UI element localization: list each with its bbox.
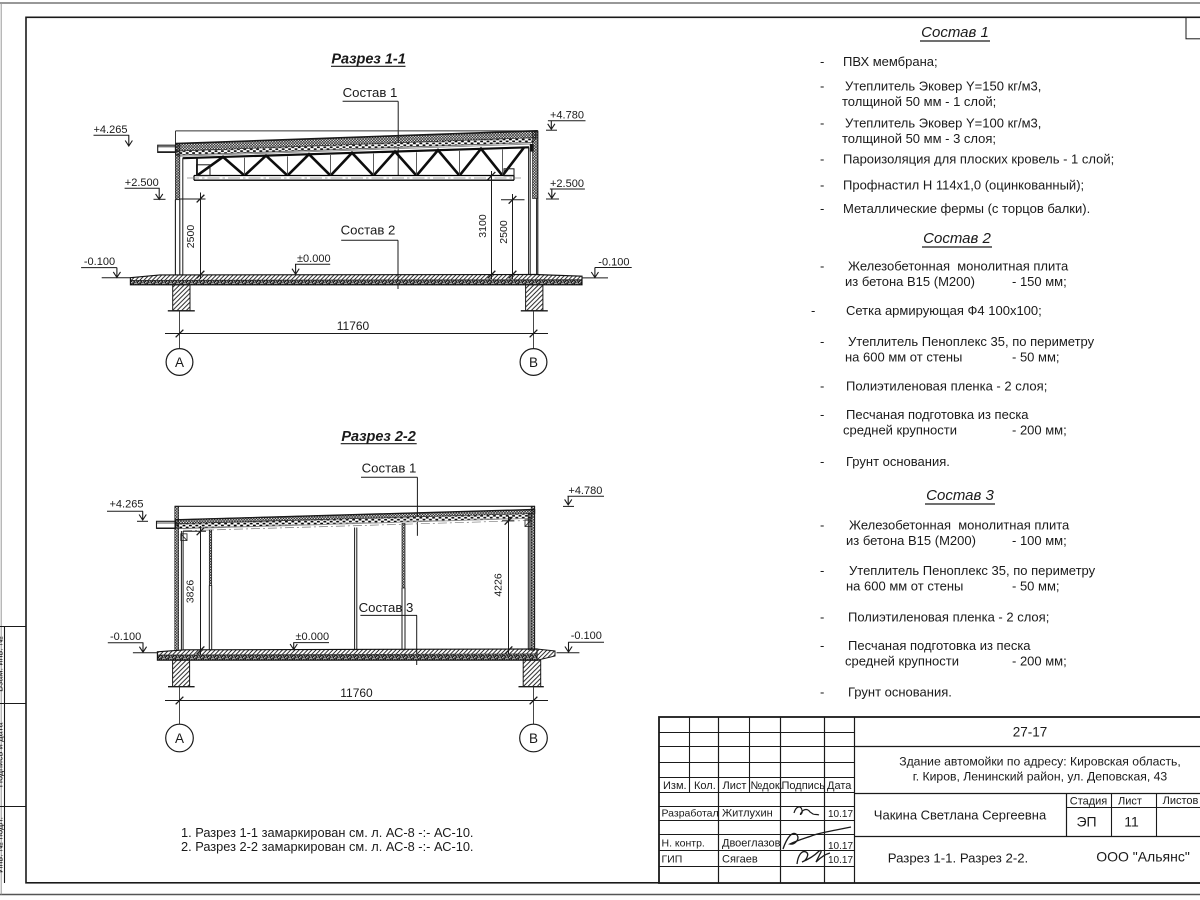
svg-text:Инв. № подл.: Инв. № подл. xyxy=(0,817,5,873)
svg-text:-: - xyxy=(820,334,824,349)
svg-text:Песчаная подготовка из песка: Песчаная подготовка из песка xyxy=(846,407,1029,422)
svg-text:Лист: Лист xyxy=(1118,796,1142,808)
svg-text:Железобетонная монолитная пли: Железобетонная монолитная плита xyxy=(848,259,1069,274)
svg-text:Состав 2: Состав 2 xyxy=(923,230,991,247)
svg-text:3826: 3826 xyxy=(185,580,197,604)
svg-text:-: - xyxy=(820,518,824,533)
svg-text:+4.265: +4.265 xyxy=(110,499,144,511)
svg-text:-: - xyxy=(820,79,824,94)
svg-text:- 150 мм;: - 150 мм; xyxy=(1012,274,1067,289)
svg-text:11: 11 xyxy=(1124,814,1139,830)
svg-text:-: - xyxy=(820,685,824,700)
svg-text:+4.780: +4.780 xyxy=(568,485,602,497)
svg-text:27-17: 27-17 xyxy=(1013,725,1048,740)
svg-text:г. Киров, Ленинский район, ул.: г. Киров, Ленинский район, ул. Деповская… xyxy=(913,770,1168,784)
svg-text:Состав 1: Состав 1 xyxy=(362,461,417,476)
svg-text:Разрез 1-1. Разрез 2-2.: Разрез 1-1. Разрез 2-2. xyxy=(888,851,1028,866)
svg-text:+4.265: +4.265 xyxy=(94,124,128,136)
svg-text:+4.780: +4.780 xyxy=(550,110,584,122)
svg-text:Кол.: Кол. xyxy=(694,780,716,792)
svg-text:Взам. инв. №: Взам. инв. № xyxy=(0,636,5,692)
svg-text:-: - xyxy=(820,638,824,653)
svg-text:3100: 3100 xyxy=(477,214,489,238)
svg-text:Н. контр.: Н. контр. xyxy=(662,838,705,850)
svg-text:11760: 11760 xyxy=(337,319,370,333)
svg-text:-: - xyxy=(820,116,824,131)
svg-text:-: - xyxy=(820,54,824,69)
svg-text:средней крупности: средней крупности xyxy=(845,654,959,669)
svg-text:№док.: №док. xyxy=(751,780,783,792)
svg-text:- 50 мм;: - 50 мм; xyxy=(1012,350,1060,365)
svg-text:- 100 мм;: - 100 мм; xyxy=(1012,533,1067,548)
svg-text:ООО "Альянс": ООО "Альянс" xyxy=(1096,849,1190,865)
svg-text:Разрез 2-2: Разрез 2-2 xyxy=(341,429,415,445)
svg-text:-0.100: -0.100 xyxy=(571,630,602,642)
svg-text:Листов: Листов xyxy=(1163,795,1199,807)
svg-text:из бетона В15 (М200): из бетона В15 (М200) xyxy=(846,533,976,548)
svg-text:Грунт основания.: Грунт основания. xyxy=(848,685,952,700)
svg-text:-: - xyxy=(820,407,824,422)
svg-text:Песчаная подготовка из песка: Песчаная подготовка из песка xyxy=(848,638,1031,653)
svg-text:Лист: Лист xyxy=(723,780,747,792)
svg-text:Житлухин: Житлухин xyxy=(722,808,773,820)
svg-text:4226: 4226 xyxy=(493,573,505,597)
svg-text:Подпись: Подпись xyxy=(782,780,826,792)
svg-text:Разрез 1-1: Разрез 1-1 xyxy=(331,52,405,68)
svg-text:-: - xyxy=(820,259,824,274)
svg-text:-: - xyxy=(820,201,824,216)
svg-text:Изм.: Изм. xyxy=(663,780,687,792)
svg-text:Чакина Светлана Сергеевна: Чакина Светлана Сергеевна xyxy=(874,808,1047,823)
svg-text:Утеплитель Пеноплекс 35, по пе: Утеплитель Пеноплекс 35, по периметру xyxy=(848,334,1095,349)
svg-text:-: - xyxy=(811,303,815,318)
svg-text:-0.100: -0.100 xyxy=(110,631,141,643)
svg-text:А: А xyxy=(175,731,184,746)
svg-text:-0.100: -0.100 xyxy=(598,256,629,268)
svg-text:±0.000: ±0.000 xyxy=(297,253,331,265)
svg-text:-: - xyxy=(820,152,824,167)
svg-text:Металлические фермы (с торцов: Металлические фермы (с торцов балки). xyxy=(843,201,1090,216)
svg-text:+2.500: +2.500 xyxy=(125,177,159,189)
svg-text:Здание автомойки по адресу: Ки: Здание автомойки по адресу: Кировская об… xyxy=(899,755,1181,769)
svg-text:-: - xyxy=(820,379,824,394)
svg-text:на 600 мм от стены: на 600 мм от стены xyxy=(846,579,963,594)
svg-text:Грунт основания.: Грунт основания. xyxy=(846,454,950,469)
svg-text:2500: 2500 xyxy=(185,225,197,249)
svg-text:-: - xyxy=(820,563,824,578)
svg-text:-: - xyxy=(820,178,824,193)
svg-text:- 200 мм;: - 200 мм; xyxy=(1012,654,1067,669)
svg-text:-: - xyxy=(820,454,824,469)
svg-text:Состав 1: Состав 1 xyxy=(343,85,398,100)
svg-text:ЭП: ЭП xyxy=(1076,814,1096,830)
svg-text:Сягаев: Сягаев xyxy=(722,854,758,866)
svg-text:толщиной 50 мм - 3 слоя;: толщиной 50 мм - 3 слоя; xyxy=(842,131,996,146)
svg-text:Состав 3: Состав 3 xyxy=(359,600,414,615)
svg-text:Состав 1: Состав 1 xyxy=(921,24,989,41)
svg-text:Дата: Дата xyxy=(827,780,852,792)
svg-text:Утеплитель Эковер Y=100 кг/м3,: Утеплитель Эковер Y=100 кг/м3, xyxy=(845,116,1041,131)
svg-text:Утеплитель Эковер Y=150 кг/м3,: Утеплитель Эковер Y=150 кг/м3, xyxy=(845,79,1041,94)
svg-text:Двоеглазов: Двоеглазов xyxy=(722,838,781,850)
svg-text:Состав 2: Состав 2 xyxy=(341,223,396,238)
svg-text:Сетка армирующая Ф4 100х100;: Сетка армирующая Ф4 100х100; xyxy=(846,303,1042,318)
svg-text:Железобетонная монолитная пли: Железобетонная монолитная плита xyxy=(849,518,1070,533)
svg-text:10.17: 10.17 xyxy=(828,841,853,852)
svg-text:- 50 мм;: - 50 мм; xyxy=(1012,579,1060,594)
svg-text:-: - xyxy=(820,610,824,625)
svg-text:Подпись и дата: Подпись и дата xyxy=(0,723,5,788)
svg-text:ГИП: ГИП xyxy=(662,854,683,866)
svg-text:Полиэтиленовая пленка - 2 слоя: Полиэтиленовая пленка - 2 слоя; xyxy=(846,379,1047,394)
svg-text:из бетона В15 (М200): из бетона В15 (М200) xyxy=(845,274,975,289)
svg-text:- 200 мм;: - 200 мм; xyxy=(1012,423,1067,438)
svg-text:+2.500: +2.500 xyxy=(550,178,584,190)
svg-text:ПВХ мембрана;: ПВХ мембрана; xyxy=(843,54,938,69)
svg-text:В: В xyxy=(529,355,538,370)
svg-text:средней крупности: средней крупности xyxy=(843,423,957,438)
svg-text:11760: 11760 xyxy=(340,686,373,700)
svg-text:Разработал: Разработал xyxy=(662,808,719,820)
svg-text:В: В xyxy=(529,731,538,746)
svg-text:Состав 3: Состав 3 xyxy=(926,487,994,504)
svg-text:Стадия: Стадия xyxy=(1070,796,1108,808)
svg-text:Полиэтиленовая пленка - 2 слоя: Полиэтиленовая пленка - 2 слоя; xyxy=(848,610,1049,625)
svg-text:толщиной 50 мм - 1 слой;: толщиной 50 мм - 1 слой; xyxy=(842,94,996,109)
svg-text:Пароизоляция для плоских крове: Пароизоляция для плоских кровель - 1 сло… xyxy=(843,152,1114,167)
svg-text:Утеплитель Пеноплекс 35, по пе: Утеплитель Пеноплекс 35, по периметру xyxy=(849,563,1096,578)
svg-text:А: А xyxy=(175,355,184,370)
svg-text:2. Разрез 2-2 замаркирован см.: 2. Разрез 2-2 замаркирован см. л. АС-8 -… xyxy=(181,839,474,854)
svg-text:2500: 2500 xyxy=(498,220,510,244)
svg-text:±0.000: ±0.000 xyxy=(296,631,330,643)
svg-text:1. Разрез 1-1 замаркирован см.: 1. Разрез 1-1 замаркирован см. л. АС-8 -… xyxy=(181,825,474,840)
svg-text:на 600 мм от стены: на 600 мм от стены xyxy=(845,350,962,365)
svg-text:Профнастил Н 114х1,0 (оцинкова: Профнастил Н 114х1,0 (оцинкованный); xyxy=(843,178,1084,193)
svg-text:10.17: 10.17 xyxy=(828,809,853,820)
svg-text:-0.100: -0.100 xyxy=(84,256,115,268)
svg-text:10.17: 10.17 xyxy=(828,855,853,866)
